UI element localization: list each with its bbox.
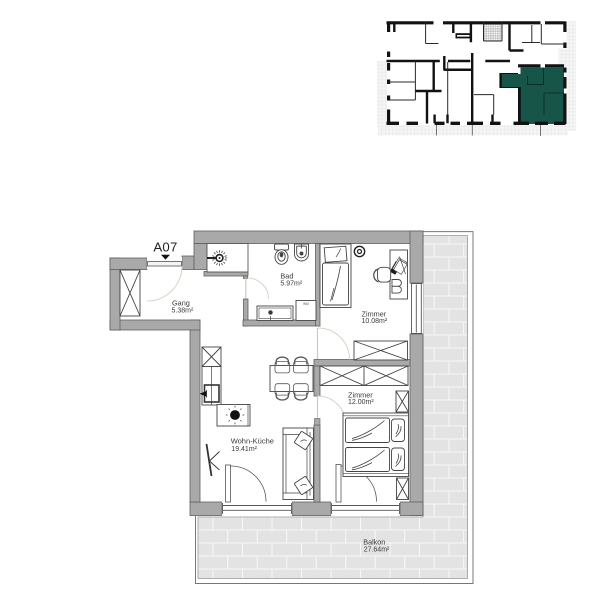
svg-text:Zimmer: Zimmer xyxy=(362,309,387,318)
svg-text:Bad: Bad xyxy=(280,271,293,280)
svg-text:A07: A07 xyxy=(153,240,177,255)
svg-text:Zimmer: Zimmer xyxy=(348,390,373,399)
svg-text:19.41m²: 19.41m² xyxy=(231,446,257,453)
svg-text:Wohn-Küche: Wohn-Küche xyxy=(231,436,274,445)
svg-text:5.97m²: 5.97m² xyxy=(280,280,302,287)
svg-text:10.08m²: 10.08m² xyxy=(362,318,388,325)
svg-text:5.38m²: 5.38m² xyxy=(172,307,194,314)
svg-text:Gang: Gang xyxy=(172,298,190,307)
svg-text:Balkon: Balkon xyxy=(363,538,385,547)
svg-text:WM: WM xyxy=(303,302,309,306)
svg-text:12.00m²: 12.00m² xyxy=(348,399,374,406)
svg-text:27.64m²: 27.64m² xyxy=(364,547,390,554)
